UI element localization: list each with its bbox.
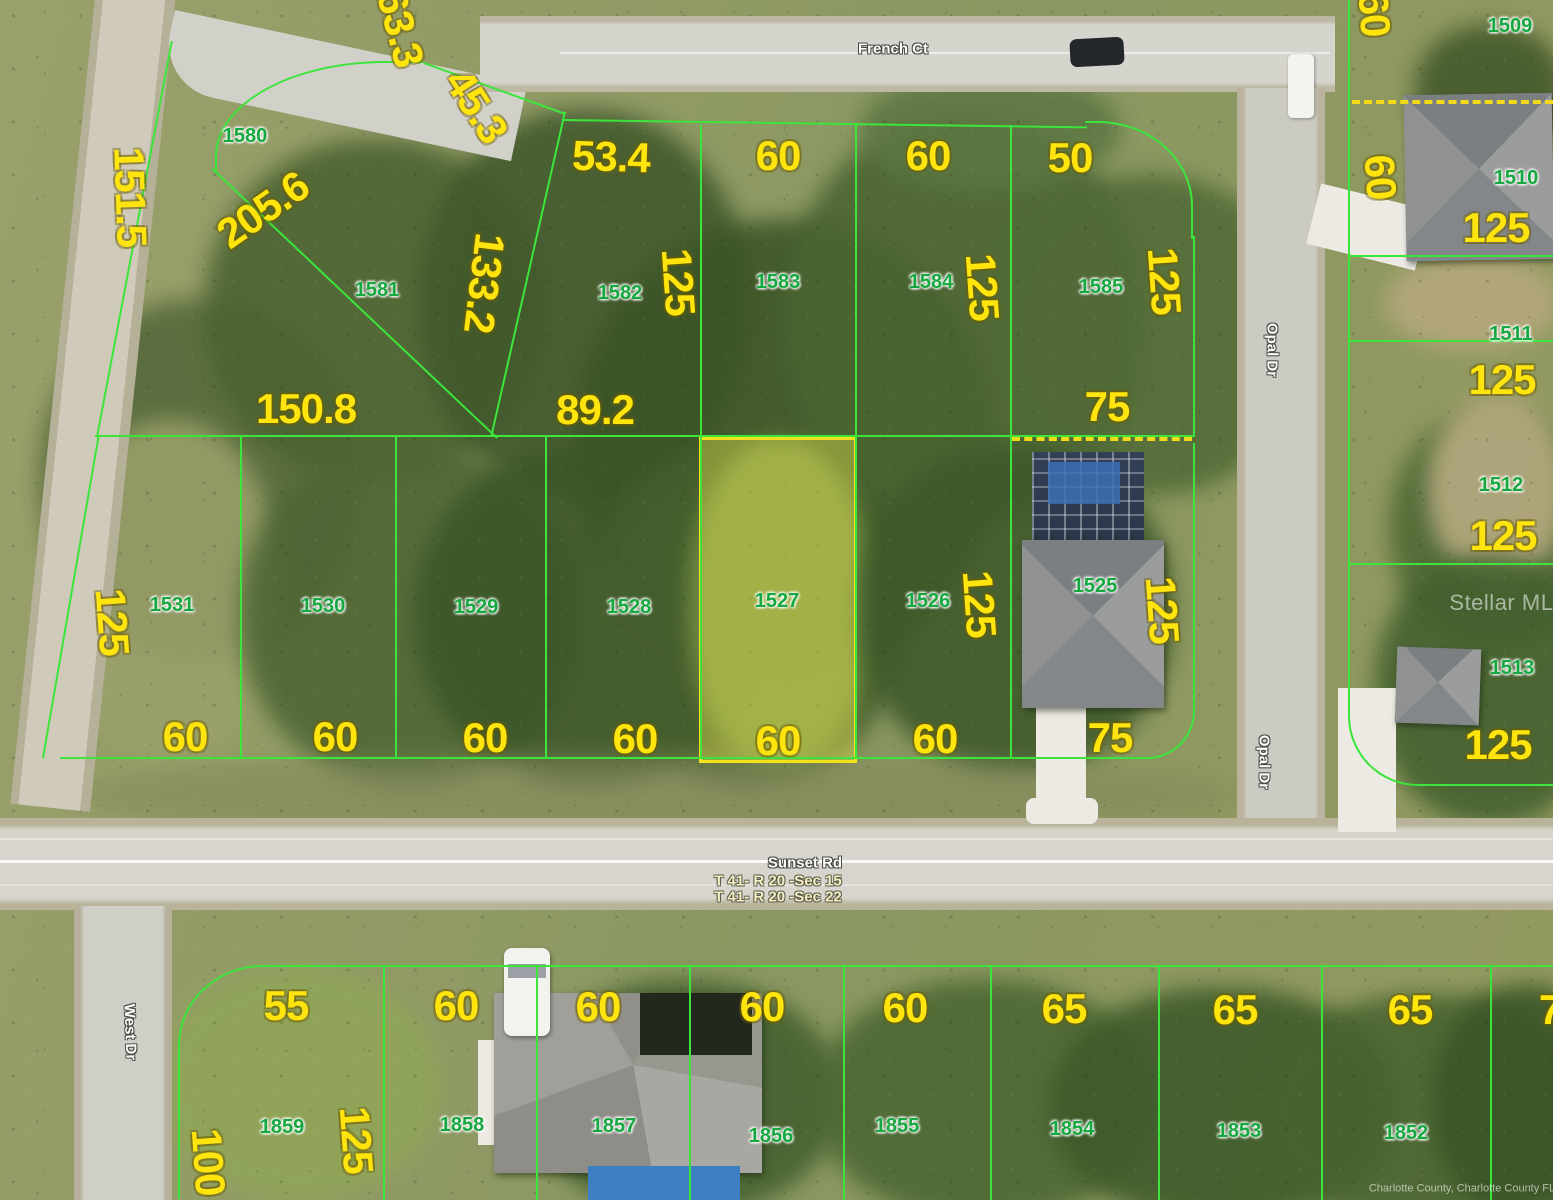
dim-75-1525: 75 — [1088, 717, 1133, 759]
dim-125-1525: 125 — [1139, 575, 1186, 645]
dim-125-1859: 125 — [333, 1105, 380, 1175]
parcel-1511: 1511 — [1489, 324, 1532, 344]
parcel-1509: 1509 — [1488, 16, 1533, 36]
parcel-1856: 1856 — [749, 1126, 794, 1146]
dim-60-bot-2: 60 — [576, 986, 621, 1028]
street-opal-dr-south: Opal Dr — [1257, 735, 1272, 789]
parcel-1582: 1582 — [598, 283, 643, 303]
dim-125-r3: 125 — [1469, 515, 1536, 557]
dim-60-r1: 60 — [1351, 0, 1396, 38]
parcel-1581: 1581 — [355, 280, 400, 300]
parcel-1580: 1580 — [223, 126, 268, 146]
dim-partial-7: 7 — [1539, 989, 1553, 1031]
parcel-1853: 1853 — [1217, 1121, 1262, 1141]
dim-60-mid-5: 60 — [756, 720, 801, 762]
parcel-1512: 1512 — [1479, 475, 1524, 495]
parcel-1526: 1526 — [906, 591, 951, 611]
stellar-mls-watermark: Stellar MLS — [1449, 592, 1553, 614]
parcel-1859: 1859 — [260, 1117, 305, 1137]
parcel-1529: 1529 — [454, 597, 499, 617]
parcel-1854: 1854 — [1050, 1119, 1095, 1139]
dim-60-mid-3: 60 — [463, 717, 508, 759]
parcel-1530: 1530 — [301, 596, 346, 616]
dim-150-8: 150.8 — [256, 388, 356, 430]
dim-75-1585: 75 — [1085, 386, 1130, 428]
dim-60-mid-2: 60 — [313, 716, 358, 758]
dim-60-mid-4: 60 — [613, 718, 658, 760]
dim-125-1526: 125 — [956, 569, 1003, 639]
dim-60-top-2: 60 — [906, 135, 951, 177]
satellite-plat-map: 63.345.3151.5205.653.4606050133.21251251… — [0, 0, 1553, 1200]
county-attribution: Charlotte County, Charlotte County FL — [1369, 1184, 1553, 1195]
dim-65-bot-1: 65 — [1042, 988, 1087, 1030]
dim-45-3: 45.3 — [437, 62, 515, 150]
parcel-1857: 1857 — [592, 1116, 637, 1136]
dim-125-r2: 125 — [1468, 359, 1535, 401]
dim-60-bot-1: 60 — [434, 985, 479, 1027]
street-opal-dr-north: Opal Dr — [1265, 323, 1280, 377]
dim-60-top-1: 60 — [756, 135, 801, 177]
dim-65-bot-2: 65 — [1213, 989, 1258, 1031]
dim-125-1584: 125 — [959, 252, 1006, 322]
parcel-1855: 1855 — [875, 1116, 920, 1136]
section-label-15: T 41- R 20 -Sec 15 — [714, 874, 842, 889]
dim-60-bot-3: 60 — [740, 986, 785, 1028]
parcel-1528: 1528 — [607, 597, 652, 617]
dim-125-1582: 125 — [655, 247, 702, 317]
dim-53-4: 53.4 — [571, 135, 650, 180]
dim-60-mid-1: 60 — [163, 716, 208, 758]
parcel-1852: 1852 — [1384, 1123, 1429, 1143]
parcel-1527: 1527 — [755, 591, 800, 611]
parcel-1584: 1584 — [909, 272, 954, 292]
dim-partial-63-3: 63.3 — [370, 0, 431, 71]
dim-133-2: 133.2 — [457, 231, 511, 335]
parcel-1525: 1525 — [1073, 576, 1118, 596]
parcel-1583: 1583 — [756, 272, 801, 292]
dim-125-1531: 125 — [89, 587, 136, 657]
dim-60-bot-4: 60 — [883, 987, 928, 1029]
dim-89-2: 89.2 — [556, 389, 634, 431]
labels-layer: 63.345.3151.5205.653.4606050133.21251251… — [0, 0, 1553, 1200]
section-label-22: T 41- R 20 -Sec 22 — [714, 890, 842, 905]
dim-151-5: 151.5 — [107, 146, 152, 248]
street-west-dr: West Dr — [122, 1004, 139, 1061]
parcel-1531: 1531 — [150, 595, 195, 615]
street-sunset-rd: Sunset Rd — [768, 856, 842, 871]
street-french-ct: French Ct — [858, 42, 928, 57]
parcel-1513: 1513 — [1490, 658, 1535, 678]
parcel-1585: 1585 — [1079, 277, 1124, 297]
parcel-1510: 1510 — [1494, 168, 1539, 188]
parcel-1858: 1858 — [440, 1115, 485, 1135]
dim-55-bot: 55 — [264, 985, 309, 1027]
dim-125-r4: 125 — [1464, 724, 1531, 766]
dim-60-r2: 60 — [1357, 153, 1402, 201]
dim-100-1859: 100 — [185, 1127, 232, 1197]
dim-65-bot-3: 65 — [1388, 989, 1433, 1031]
dim-50-top: 50 — [1048, 137, 1093, 179]
dim-60-mid-6: 60 — [913, 718, 958, 760]
dim-125-1585: 125 — [1141, 246, 1188, 316]
dim-205-6: 205.6 — [210, 164, 316, 256]
dim-125-r1: 125 — [1462, 207, 1529, 249]
